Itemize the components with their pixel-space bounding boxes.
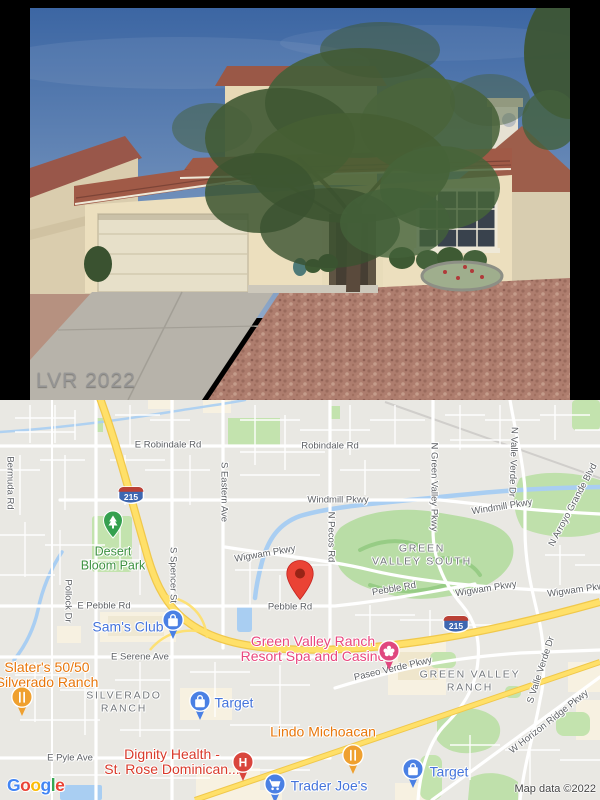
screenshot-root: LVR 2022 [0,0,600,800]
map-data-copyright: Map data ©2022 [515,783,597,795]
hospital-pin-icon[interactable]: H [231,751,255,782]
svg-text:H: H [239,755,248,769]
photo-watermark: LVR 2022 [36,369,136,393]
sams-club-pin-icon[interactable] [161,609,185,640]
property-location-marker-icon[interactable] [285,559,315,601]
interstate-215-shield-icon: 215 [441,615,471,633]
listing-photo[interactable]: LVR 2022 [0,0,600,400]
trader-joes-cart-pin-icon[interactable] [263,773,287,800]
lindo-restaurant-pin-icon[interactable] [341,744,365,775]
interstate-215-shield-icon: 215 [116,486,146,504]
slaters-restaurant-pin-icon[interactable] [10,686,34,717]
park-tree-pin-icon[interactable] [102,510,124,539]
casino-spa-pin-icon[interactable] [377,640,401,671]
map-canvas[interactable]: Bermuda Rd E Robindale Rd Robindale Rd W… [0,400,600,800]
svg-text:215: 215 [124,492,138,502]
google-logo[interactable]: Google [7,775,64,796]
target-west-pin-icon[interactable] [188,690,212,721]
target-east-pin-icon[interactable] [401,758,425,789]
house-photo-illustration [30,8,570,400]
svg-text:215: 215 [449,621,463,631]
